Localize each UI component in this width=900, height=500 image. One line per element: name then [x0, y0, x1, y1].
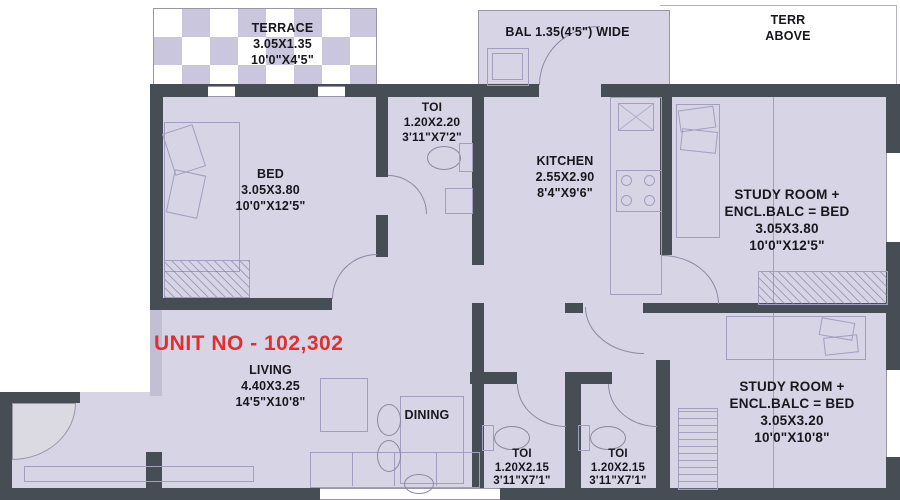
study-bottom-line2: ENCL.BALC = BED	[692, 395, 892, 412]
wall-toi-left-b	[376, 215, 388, 257]
dining-name: DINING	[383, 407, 471, 423]
terrace-dim-ft: 10'0"X4'5"	[190, 52, 375, 68]
washer-balcony-inner	[492, 53, 523, 80]
toi-b1-dim-m: 1.20X2.15	[478, 462, 566, 476]
living-dim-ft: 14'5"X10'8"	[198, 394, 343, 410]
wall-divider-stub	[565, 303, 583, 313]
study-top-line2: ENCL.BALC = BED	[688, 203, 886, 220]
study-bottom-line1: STUDY ROOM +	[692, 378, 892, 395]
window-right-1	[886, 153, 900, 242]
terrace-dim-m: 3.05X1.35	[190, 36, 375, 52]
bed-dim-m: 3.05X3.80	[193, 182, 348, 198]
balcony-name: BAL 1.35(4'5") WIDE	[460, 24, 675, 40]
toi-top-dim-m: 1.20X2.20	[378, 115, 486, 130]
wall-right-c	[886, 457, 900, 488]
kitchen-dim-m: 2.55X2.90	[494, 169, 636, 185]
study-bottom-dim-m: 3.05X3.20	[692, 412, 892, 429]
toi-b2-dim-ft: 3'11"X7'1"	[574, 475, 662, 489]
toilet-wc-top	[427, 146, 461, 170]
wardrobe-study-top	[758, 271, 888, 305]
study-top-dim-ft: 10'0"X12'5"	[688, 237, 886, 254]
toilet-wc-b2	[590, 426, 626, 450]
kitchen-name: KITCHEN	[494, 153, 636, 169]
unit-number-label: UNIT NO - 102,302	[154, 332, 404, 355]
toi-top-dim-ft: 3'11"X7'2"	[378, 130, 486, 145]
terr-above-line1: TERR	[728, 12, 848, 28]
sink-toi-top	[445, 188, 473, 214]
study-bottom-dim-ft: 10'0"X10'8"	[692, 429, 892, 446]
toilet-wc-b1	[494, 426, 530, 450]
wall-left-lower	[0, 392, 12, 500]
bed-pillow	[680, 128, 718, 154]
terr-above-line2: ABOVE	[728, 28, 848, 44]
living-name: LIVING	[198, 362, 343, 378]
toi-b1-dim-ft: 3'11"X7'1"	[478, 475, 566, 489]
toi-b2-dim-m: 1.20X2.15	[574, 462, 662, 476]
bed-name: BED	[193, 166, 348, 182]
wall-left-upper	[150, 84, 163, 310]
balcony-label: BAL 1.35(4'5") WIDE	[460, 24, 675, 40]
stove-burner	[644, 195, 655, 206]
study-top-dim-m: 3.05X3.80	[688, 220, 886, 237]
console-living	[24, 466, 254, 482]
toi-b1-name: TOI	[478, 448, 566, 462]
terr-above-label: TERR ABOVE	[728, 12, 848, 44]
study-bottom-label: STUDY ROOM + ENCL.BALC = BED 3.05X3.20 1…	[692, 378, 892, 446]
stove-burner	[644, 175, 655, 186]
study-top-label: STUDY ROOM + ENCL.BALC = BED 3.05X3.80 1…	[688, 186, 886, 254]
unit-number-text: UNIT NO - 102,302	[154, 332, 404, 355]
terrace-label: TERRACE 3.05X1.35 10'0"X4'5"	[190, 20, 375, 68]
wall-right-a	[886, 84, 900, 153]
toi-b2-name: TOI	[574, 448, 662, 462]
balcony-door-opening	[539, 84, 601, 97]
bed-label: BED 3.05X3.80 10'0"X12'5"	[193, 166, 348, 214]
toi-bottom1-label: TOI 1.20X2.15 3'11"X7'1"	[478, 448, 566, 489]
wall-right-b	[886, 242, 900, 370]
study-top-line1: STUDY ROOM +	[688, 186, 886, 203]
dining-chair	[377, 440, 401, 472]
bed-dim-ft: 10'0"X12'5"	[193, 198, 348, 214]
terrace-name: TERRACE	[190, 20, 375, 36]
kitchen-label: KITCHEN 2.55X2.90 8'4"X9'6"	[494, 153, 636, 201]
wall-bed-bottom	[150, 298, 332, 310]
terr-above-outline-right	[896, 5, 897, 84]
window-terrace-2	[318, 86, 345, 97]
toi-top-name: TOI	[378, 100, 486, 115]
sofa-cushion-line	[352, 452, 353, 486]
wall-hall-bottom-a	[470, 372, 517, 384]
dining-label: DINING	[383, 407, 471, 423]
bed-pillow	[823, 334, 859, 355]
wall-entry-top	[0, 392, 80, 403]
dining-chair	[404, 474, 434, 494]
terr-above-outline-top	[660, 5, 897, 6]
toilet-tank-top	[459, 143, 473, 172]
kitchen-sink	[618, 103, 654, 131]
window-terrace-1	[208, 86, 235, 97]
wardrobe-bedroom	[164, 260, 250, 298]
toi-top-label: TOI 1.20X2.20 3'11"X7'2"	[378, 100, 486, 145]
toi-bottom2-label: TOI 1.20X2.15 3'11"X7'1"	[574, 448, 662, 489]
floor-plan: TERRACE 3.05X1.35 10'0"X4'5" BAL 1.35(4'…	[0, 0, 900, 500]
living-label: LIVING 4.40X3.25 14'5"X10'8"	[198, 362, 343, 410]
kitchen-dim-ft: 8'4"X9'6"	[494, 185, 636, 201]
living-dim-m: 4.40X3.25	[198, 378, 343, 394]
